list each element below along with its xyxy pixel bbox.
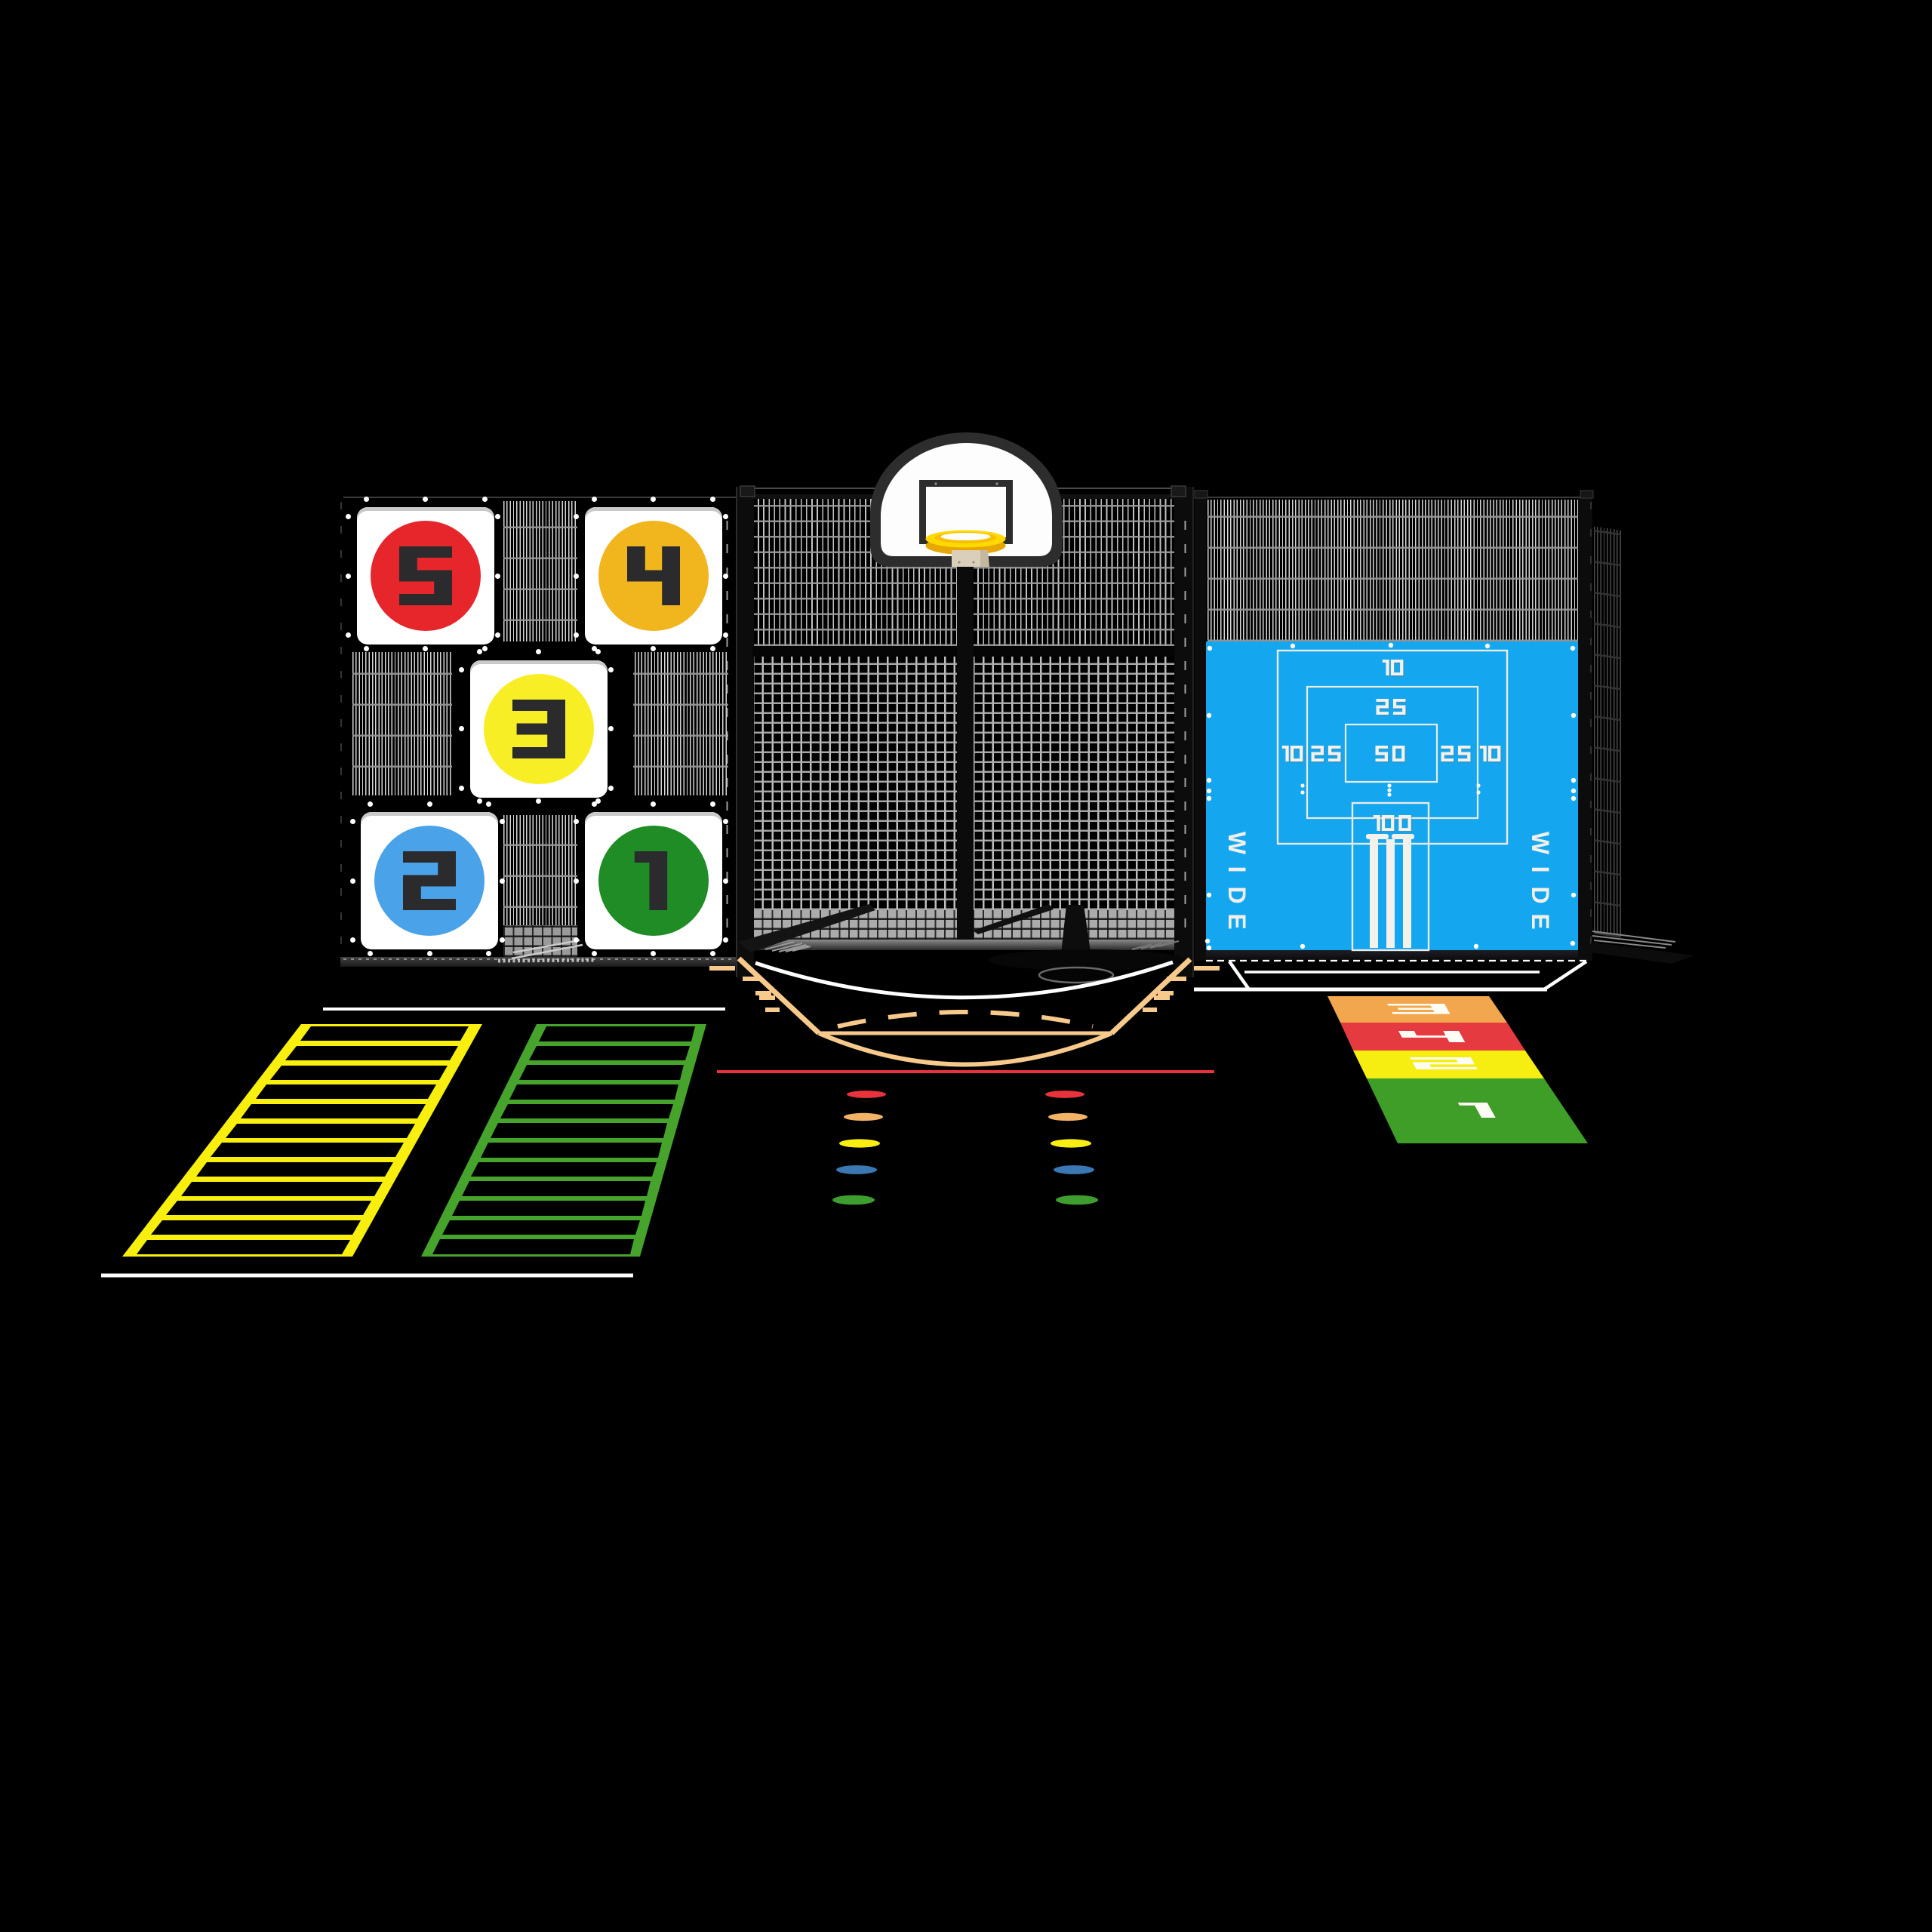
svg-text:I: I	[1223, 866, 1251, 873]
svg-text:E: E	[1223, 913, 1251, 929]
svg-text:I: I	[1527, 866, 1554, 873]
svg-text:D: D	[1527, 886, 1554, 903]
svg-text:D: D	[1223, 886, 1251, 903]
svg-text:W: W	[1527, 832, 1554, 855]
svg-text:W: W	[1223, 832, 1251, 855]
svg-text:E: E	[1527, 913, 1554, 929]
